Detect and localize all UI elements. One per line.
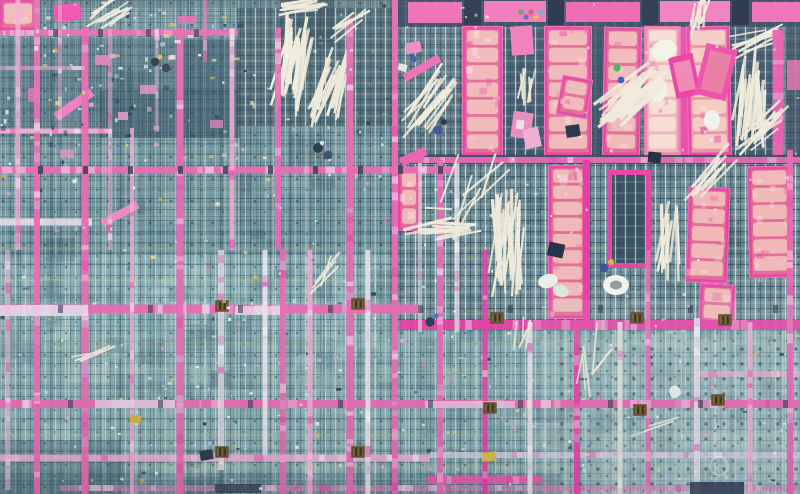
svg-text:шшш: шшш <box>750 463 774 474</box>
svg-text:c: c <box>716 460 722 474</box>
